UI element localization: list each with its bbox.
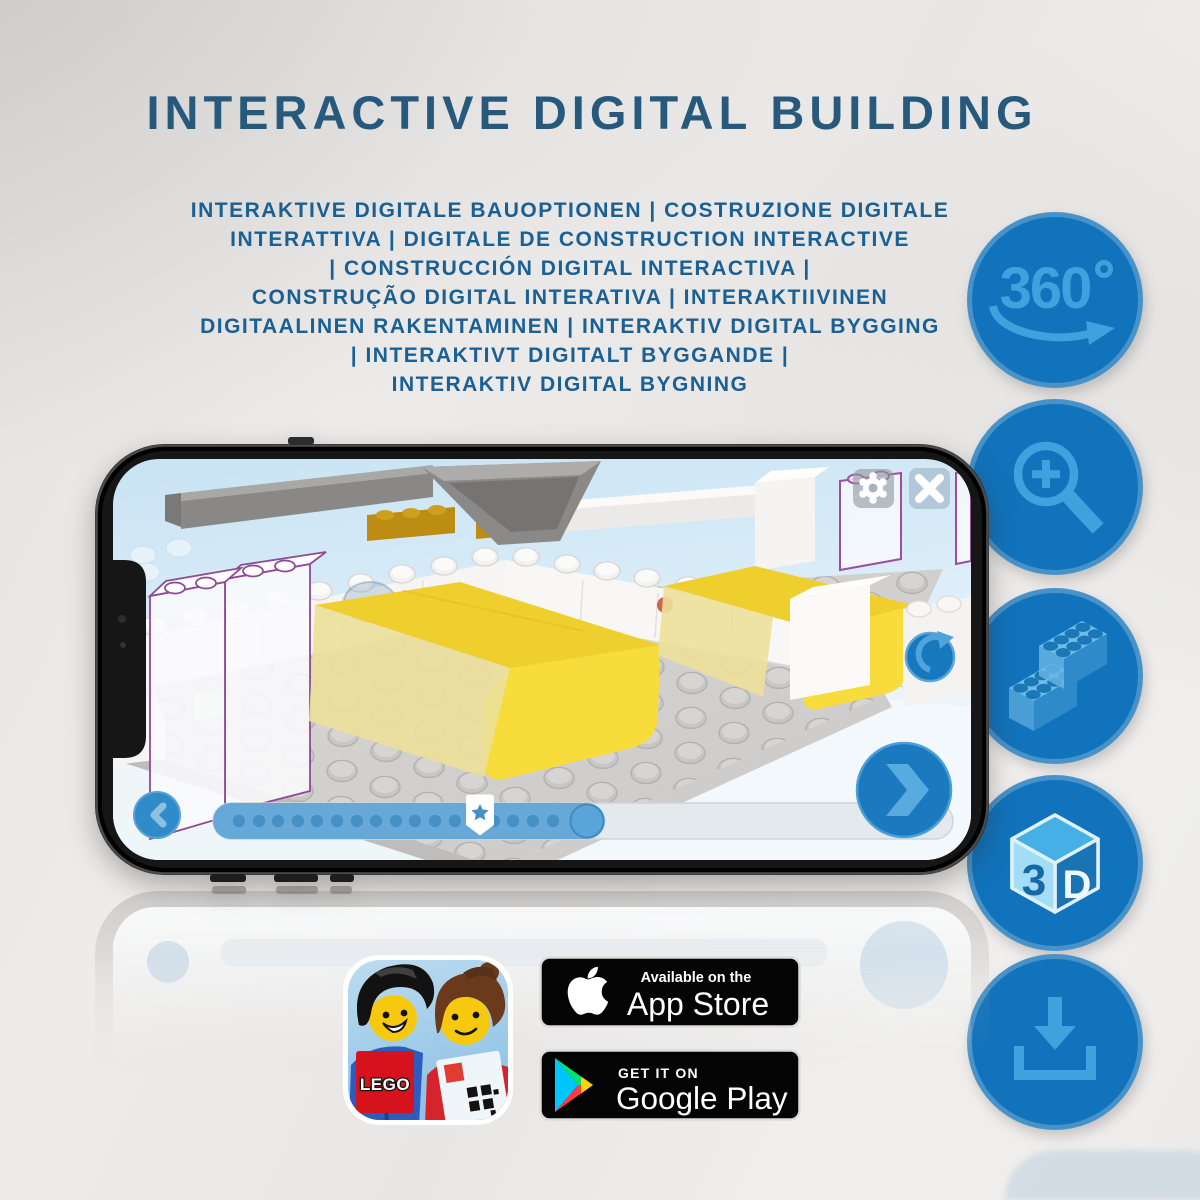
svg-text:Google Play: Google Play — [616, 1080, 788, 1116]
svg-text:D: D — [1063, 863, 1092, 907]
svg-text:LEGO: LEGO — [360, 1075, 410, 1094]
svg-text:3: 3 — [1022, 856, 1046, 905]
svg-text:GET IT ON: GET IT ON — [618, 1065, 699, 1081]
svg-text:App Store: App Store — [627, 986, 769, 1022]
svg-text:Available on the: Available on the — [641, 970, 752, 986]
svg-text:360: 360 — [1000, 256, 1091, 321]
